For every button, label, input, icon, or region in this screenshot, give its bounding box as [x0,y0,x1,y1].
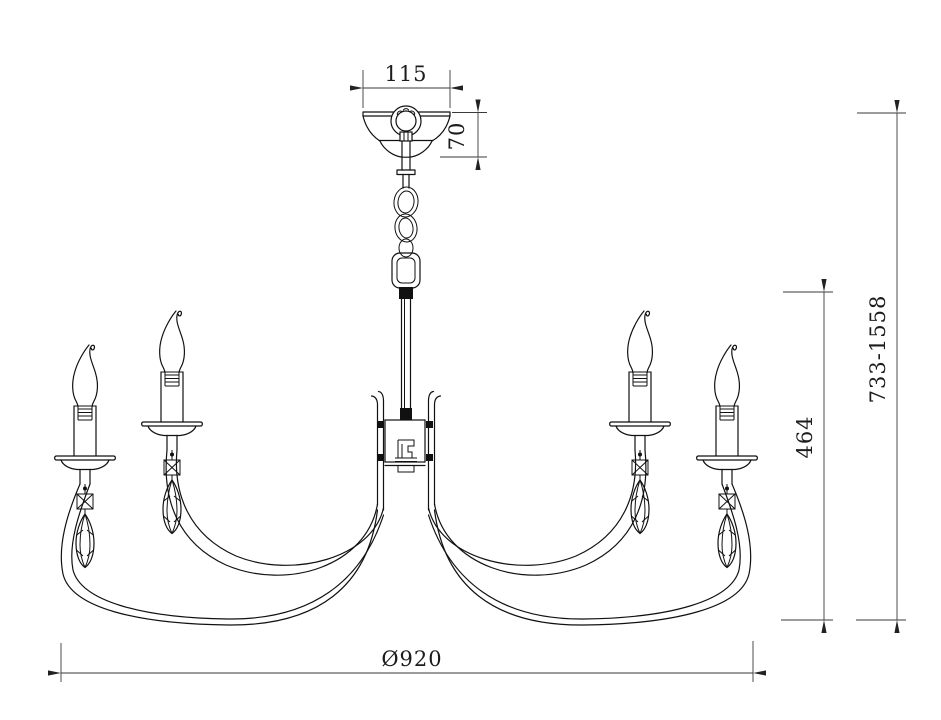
dimension-body-height: 464 [781,292,833,620]
arm-left-outer [61,484,383,625]
arm-right-outer [429,484,751,625]
chain-ferrule [399,287,413,299]
dim-canopy-height-label: 70 [445,122,469,151]
dim-body-height-label: 464 [793,415,817,458]
technical-drawing-canvas: 115 70 733-1558 464 Ø920 [0,0,941,720]
dimension-overall-height: 733-1558 [856,113,906,620]
dim-overall-height-label: 733-1558 [866,295,890,404]
dimension-diameter: Ø920 [61,641,753,682]
arm-left-inner [166,450,383,575]
hanging-ring-icon [391,106,421,141]
candle-right-inner [610,311,671,534]
suspension-chain [392,175,420,300]
dimension-canopy-height: 70 [440,113,487,158]
ceiling-canopy [363,106,450,175]
arm-right-inner [429,450,646,575]
center-hub [377,420,433,472]
dim-diameter-label: Ø920 [381,647,442,671]
center-column [400,299,412,420]
chandelier-diagram: 115 70 733-1558 464 Ø920 [0,0,941,720]
dim-canopy-width-label: 115 [384,62,427,86]
dimension-canopy-width: 115 [363,62,450,108]
hub-bracket-icon [395,440,417,472]
candle-left-inner [142,311,203,534]
